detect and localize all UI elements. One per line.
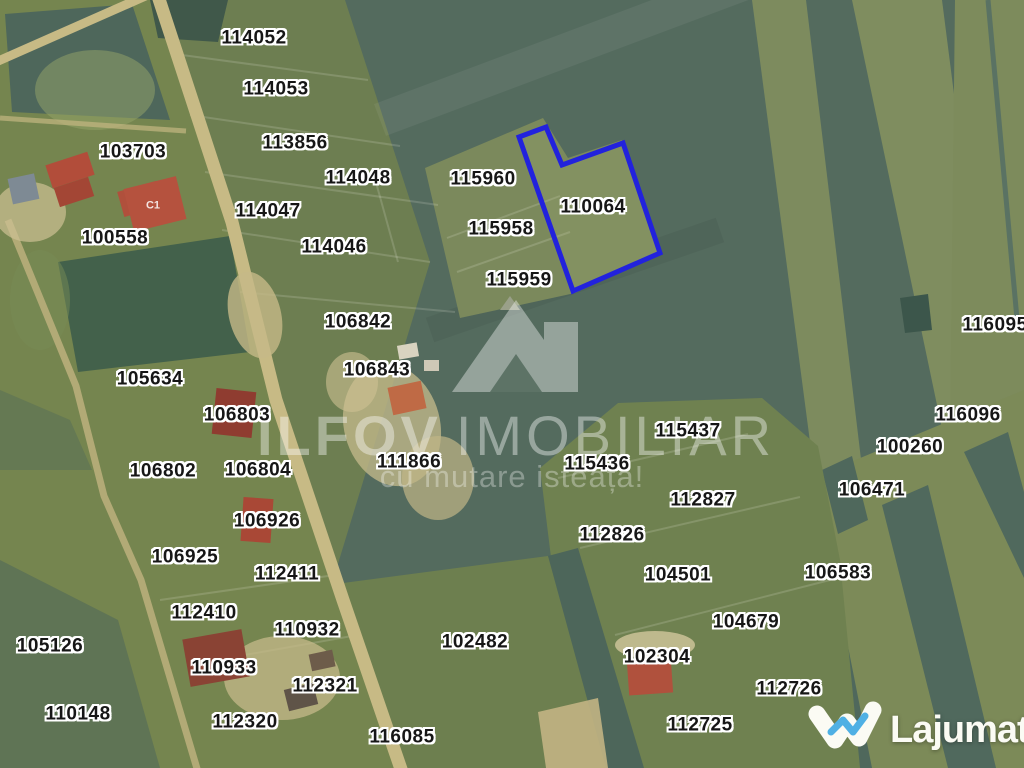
parcel-label-112410: 112410	[171, 604, 236, 623]
parcel-label-115960: 115960	[450, 170, 515, 189]
site-logo[interactable]: Lajumate.ro	[806, 700, 1024, 760]
parcel-label-114052: 114052	[221, 29, 286, 48]
parcel-label-110148: 110148	[45, 705, 110, 724]
parcel-label-112321: 112321	[292, 677, 357, 696]
parcel-label-106471: 106471	[839, 481, 905, 500]
parcel-label-116095: 116095	[962, 316, 1024, 335]
parcel-label-110064: 110064	[560, 198, 625, 217]
parcel-label-111866: 111866	[377, 453, 441, 472]
parcel-label-113856: 113856	[262, 134, 327, 153]
parcel-label-112826: 112826	[579, 526, 644, 545]
parcel-label-114046: 114046	[301, 238, 366, 257]
parcel-label-100558: 100558	[82, 229, 148, 248]
parcel-label-114053: 114053	[243, 80, 308, 99]
logo-text: Lajumate	[890, 709, 1024, 751]
parcel-label-106925: 106925	[152, 548, 218, 567]
parcel-label-105634: 105634	[117, 370, 183, 389]
parcel-label-104679: 104679	[713, 613, 779, 632]
parcel-label-106583: 106583	[805, 564, 871, 583]
parcel-label-106842: 106842	[325, 313, 391, 332]
parcel-label-115959: 115959	[486, 271, 551, 290]
parcel-label-106843: 106843	[344, 361, 410, 380]
parcel-label-115437: 115437	[655, 422, 720, 441]
parcel-label-100260: 100260	[877, 438, 943, 457]
parcel-label-102482: 102482	[442, 633, 508, 652]
parcel-label-C1: C1	[146, 201, 160, 212]
parcel-label-114047: 114047	[235, 202, 300, 221]
parcel-label-110932: 110932	[274, 621, 339, 640]
parcel-label-112320: 112320	[212, 713, 277, 732]
parcel-label-103703: 103703	[100, 143, 166, 162]
parcel-label-106804: 106804	[225, 461, 291, 480]
parcel-label-112827: 112827	[670, 491, 735, 510]
parcel-label-105126: 105126	[17, 637, 83, 656]
parcel-label-106926: 106926	[234, 512, 300, 531]
parcel-label-116096: 116096	[935, 406, 1000, 425]
parcel-label-110933: 110933	[191, 659, 256, 678]
lajumate-logo-icon	[806, 700, 884, 760]
parcel-label-112726: 112726	[756, 680, 821, 699]
parcel-label-106803: 106803	[204, 406, 270, 425]
parcel-label-102304: 102304	[624, 648, 690, 667]
map-stage: ILFOVIMOBILIAR cu mutare isteață! 114052…	[0, 0, 1024, 768]
parcel-label-116085: 116085	[369, 728, 434, 747]
parcel-label-114048: 114048	[325, 169, 390, 188]
parcel-label-115958: 115958	[468, 220, 533, 239]
parcel-label-104501: 104501	[645, 566, 711, 585]
parcel-label-106802: 106802	[130, 462, 196, 481]
parcel-label-112411: 112411	[255, 565, 319, 584]
parcel-label-112725: 112725	[667, 716, 732, 735]
parcel-label-115436: 115436	[564, 455, 629, 474]
